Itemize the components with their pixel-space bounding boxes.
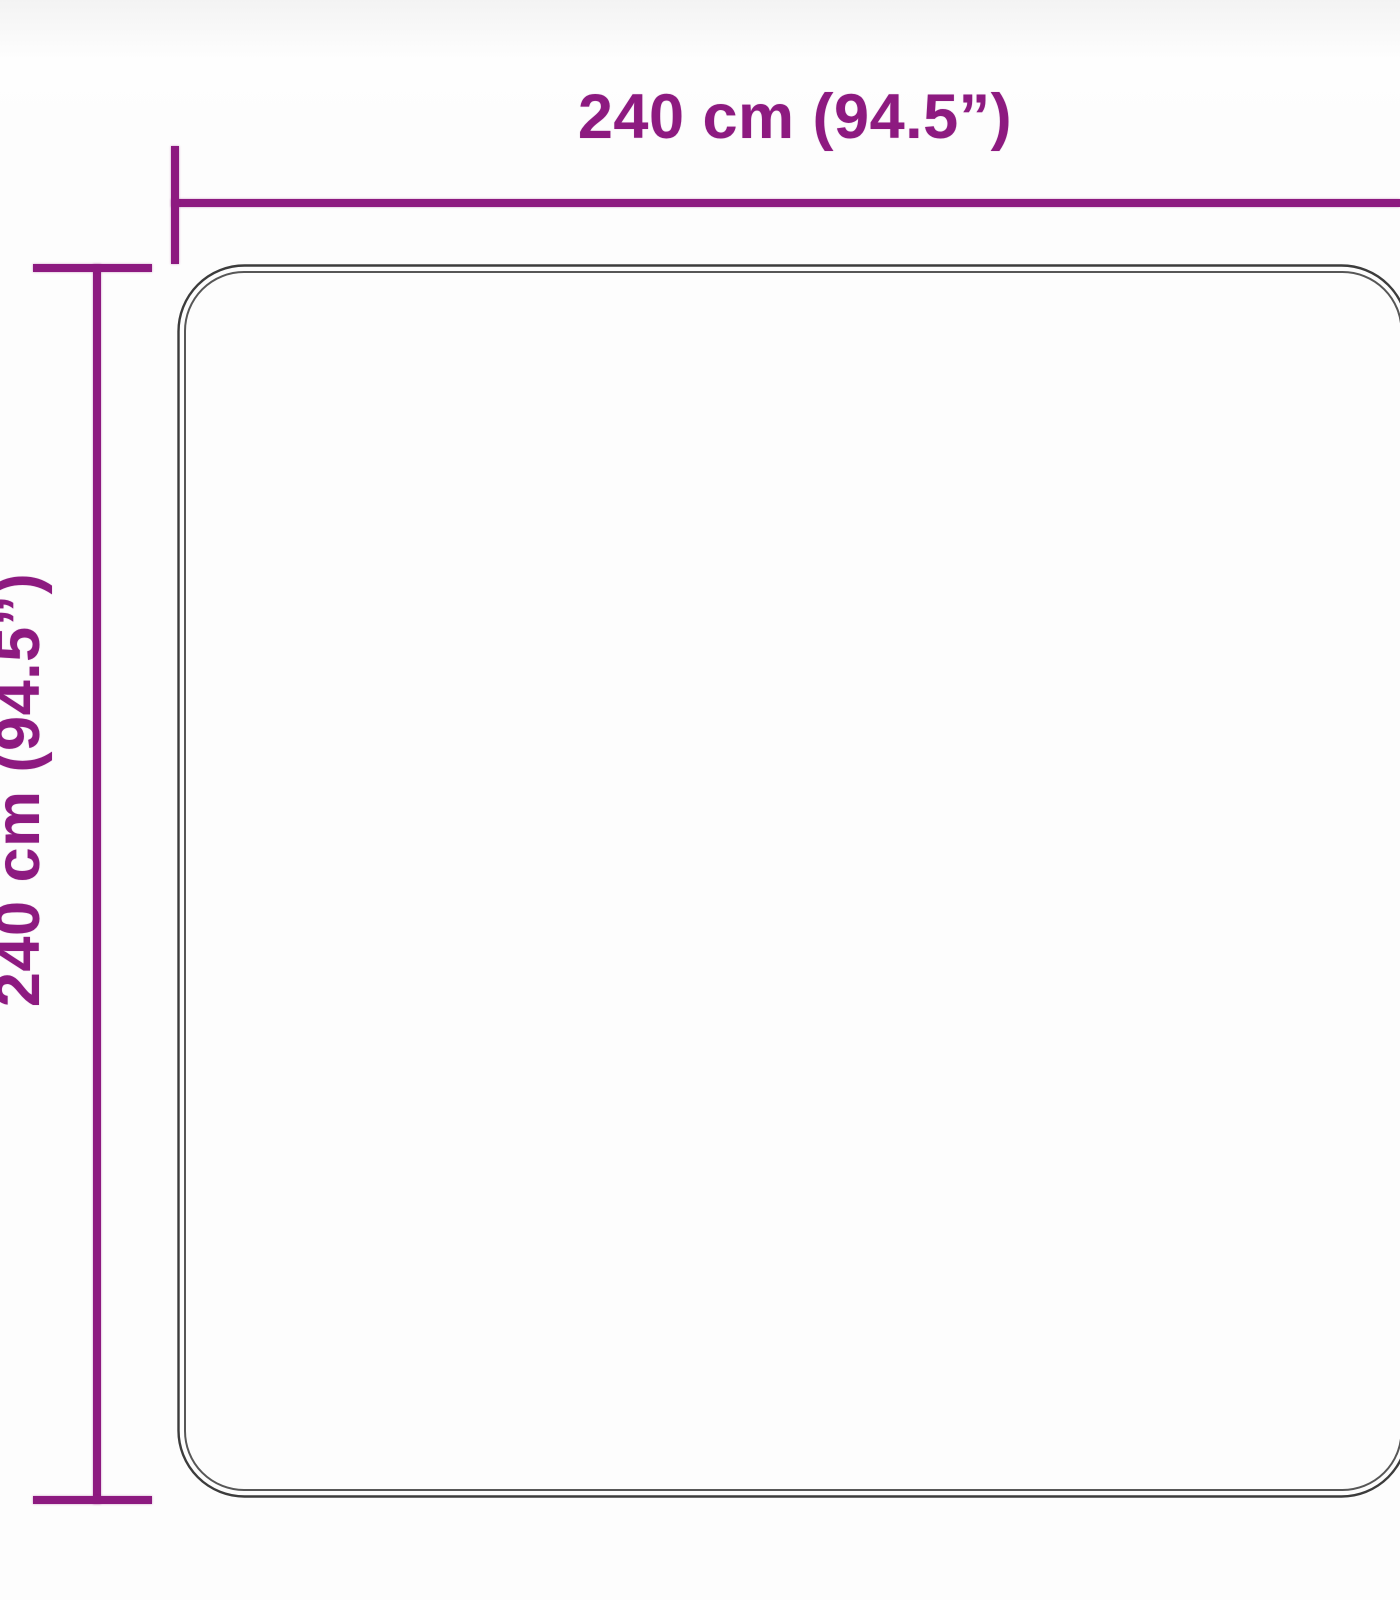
height-dimension-line [93,264,101,1504]
rug-outline-outer-line [179,266,1400,1497]
rug-outline [0,0,1400,1600]
height-dimension-tick-top [33,264,152,272]
width-dimension-label: 240 cm (94.5”) [578,80,1012,156]
width-dimension-line [171,199,1400,207]
rug-outline-inner-line [185,272,1400,1490]
width-dimension-tick-left [171,146,179,264]
height-dimension-label: 240 cm (94.5”) [0,573,57,1007]
height-dimension-tick-bottom [33,1496,152,1504]
diagram-canvas: 240 cm (94.5”) 240 cm (94.5”) [0,0,1400,1600]
